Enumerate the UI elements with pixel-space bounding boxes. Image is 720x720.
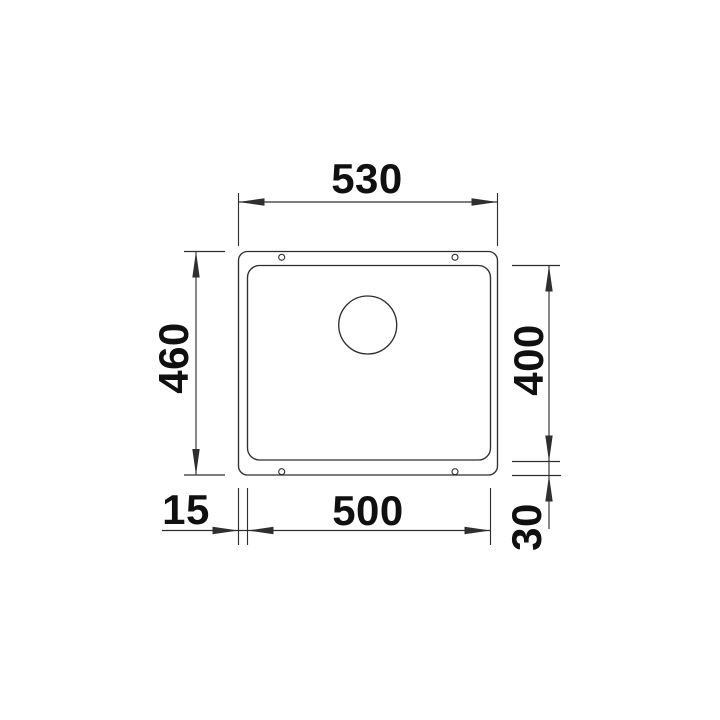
label-bowl-depth: 400 bbox=[505, 324, 552, 396]
arrowhead-530-left-icon bbox=[239, 198, 265, 205]
arrowhead-460-top-icon bbox=[192, 252, 199, 278]
drawing-canvas: 530 460 400 30 15 500 bbox=[0, 0, 720, 720]
mounting-hole-top-right-icon bbox=[452, 254, 458, 260]
sink-dimension-drawing: 530 460 400 30 15 500 bbox=[0, 0, 720, 720]
arrowhead-530-right-icon bbox=[472, 198, 498, 205]
mounting-hole-top-left-icon bbox=[279, 254, 285, 260]
label-rear-rim: 30 bbox=[503, 503, 550, 551]
arrowhead-400-bottom-icon bbox=[545, 436, 552, 462]
sink-bowl-outline bbox=[248, 266, 491, 461]
arrowhead-400-top-icon bbox=[545, 266, 552, 292]
sink-outer-rim-outline bbox=[239, 252, 498, 476]
mounting-hole-bottom-left-icon bbox=[279, 469, 285, 475]
arrowhead-30-top-icon bbox=[545, 476, 552, 502]
arrowhead-500-left-icon bbox=[248, 527, 274, 534]
label-bowl-width: 500 bbox=[332, 487, 404, 534]
label-overall-depth: 460 bbox=[150, 322, 197, 394]
dimension-arrowheads bbox=[192, 198, 552, 534]
arrowhead-500-right-icon bbox=[465, 527, 491, 534]
arrowhead-15-right-icon bbox=[213, 527, 239, 534]
label-left-rim: 15 bbox=[162, 486, 210, 533]
mounting-hole-bottom-right-icon bbox=[452, 469, 458, 475]
label-overall-width: 530 bbox=[331, 155, 403, 202]
dimension-labels: 530 460 400 30 15 500 bbox=[150, 155, 552, 551]
arrowhead-460-bottom-icon bbox=[192, 449, 199, 475]
drain-hole-outline bbox=[339, 296, 397, 354]
sink-outlines bbox=[239, 252, 498, 476]
